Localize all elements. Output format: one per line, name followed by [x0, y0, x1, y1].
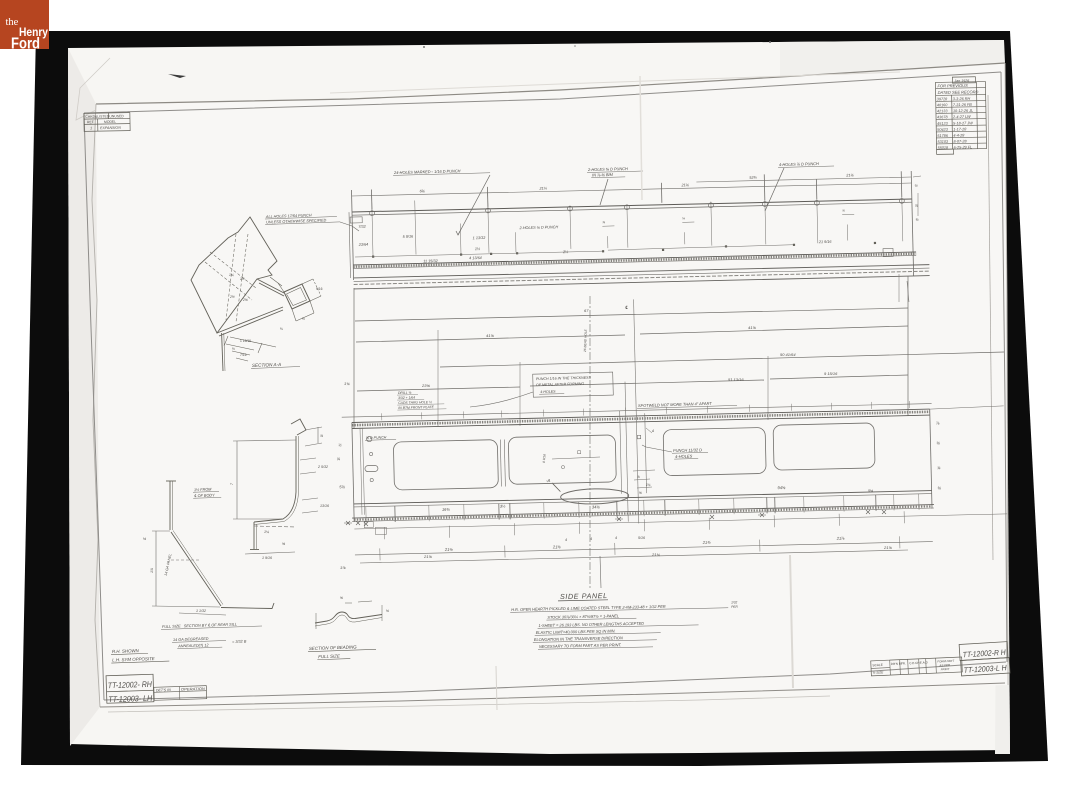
svg-text:5 9/16: 5 9/16 [403, 235, 415, 239]
svg-text:9 15/16: 9 15/16 [824, 371, 838, 376]
svg-text:⅛: ⅛ [386, 609, 389, 613]
svg-text:⅞: ⅞ [637, 475, 640, 479]
svg-text:½: ½ [302, 317, 305, 321]
svg-text:51786: 51786 [937, 134, 949, 138]
svg-text:13/16: 13/16 [320, 504, 329, 508]
svg-text:1/32: 1/32 [731, 600, 738, 604]
svg-text:34⅜: 34⅜ [592, 504, 601, 509]
svg-text:21⅞: 21⅞ [836, 536, 846, 541]
svg-text:21⅜: 21⅜ [552, 544, 562, 549]
svg-text:IN ⅞-⅝ B/M: IN ⅞-⅝ B/M [592, 172, 614, 178]
svg-text:50423: 50423 [937, 128, 949, 132]
svg-text:4-HOLES ⅞ D PUNCH: 4-HOLES ⅞ D PUNCH [779, 161, 819, 167]
svg-text:1⅞: 1⅞ [340, 565, 346, 570]
svg-text:5⅛: 5⅛ [868, 489, 873, 493]
svg-text:4: 4 [590, 537, 592, 541]
svg-text:1 9/16: 1 9/16 [262, 556, 272, 560]
svg-text:1 15/16: 1 15/16 [240, 339, 251, 343]
svg-text:℄ OF BODY: ℄ OF BODY [194, 493, 215, 498]
svg-text:½ SIZE: ½ SIZE [873, 670, 885, 674]
svg-text:⅝: ⅝ [282, 542, 285, 546]
svg-text:Ford: Ford [11, 36, 40, 53]
svg-text:4: 4 [565, 538, 567, 542]
svg-text:-A: -A [546, 478, 551, 483]
svg-text:4-HOLES: 4-HOLES [675, 453, 693, 458]
svg-text:41⅞: 41⅞ [486, 333, 494, 338]
svg-text:OPERATION: OPERATION [181, 687, 206, 692]
svg-text:10-12-26 JL: 10-12-26 JL [953, 109, 973, 113]
svg-text:45123: 45123 [937, 122, 949, 126]
svg-text:SIDE PANEL: SIDE PANEL [560, 591, 608, 601]
svg-text:8-07-28: 8-07-28 [953, 139, 967, 143]
svg-text:3/32 + 1/64: 3/32 + 1/64 [398, 396, 415, 400]
svg-text:16¾: 16¾ [442, 507, 451, 512]
svg-text:TR.: TR. [901, 661, 906, 665]
svg-text:FULL SIZE: FULL SIZE [318, 653, 340, 659]
svg-text:21⅞: 21⅞ [423, 554, 432, 559]
svg-text:26 BEAD HOLE: 26 BEAD HOLE [583, 328, 588, 353]
svg-text:53103: 53103 [937, 140, 949, 144]
svg-text:C.E.CH: C.E.CH [909, 661, 919, 665]
svg-text:SECTION A-A: SECTION A-A [252, 362, 281, 368]
svg-text:43678: 43678 [937, 115, 949, 119]
svg-text:3½: 3½ [500, 503, 506, 508]
svg-text:23⅛: 23⅛ [421, 383, 430, 388]
svg-text:¾: ¾ [842, 209, 845, 213]
svg-text:1⅞: 1⅞ [150, 568, 154, 573]
svg-text:⅝: ⅝ [340, 596, 343, 600]
svg-text:PRINT: PRINT [941, 667, 950, 671]
svg-text:67: 67 [584, 308, 589, 313]
svg-text:1½: 1½ [240, 277, 245, 281]
svg-text:21¼: 21¼ [538, 186, 547, 190]
svg-text:4: 4 [615, 536, 617, 540]
svg-text:1½ FROM: 1½ FROM [194, 487, 212, 492]
svg-text:⅜: ⅜ [280, 327, 283, 331]
svg-text:41⅞: 41⅞ [748, 325, 756, 330]
svg-text:½: ½ [232, 347, 235, 351]
svg-text:39728: 39728 [937, 97, 949, 101]
svg-text:21⅞: 21⅞ [883, 545, 892, 550]
svg-text:TT-12002- RH: TT-12002- RH [108, 680, 152, 690]
svg-text:21¾: 21¾ [651, 552, 660, 557]
svg-text:7-31-26 FB: 7-31-26 FB [953, 103, 973, 107]
svg-text:21⅛: 21⅛ [680, 183, 689, 187]
svg-text:SCALE: SCALE [872, 663, 883, 667]
svg-text:1-17-28: 1-17-28 [953, 127, 967, 131]
svg-text:4-HOLES: 4-HOLES [540, 390, 556, 394]
svg-text:52¾: 52¾ [749, 176, 757, 180]
svg-text:5/16: 5/16 [638, 536, 645, 540]
svg-text:1: 1 [90, 126, 92, 130]
svg-text:1¾: 1¾ [344, 381, 350, 386]
svg-text:1½: 1½ [475, 247, 481, 251]
svg-text:CHKD&LISTED: CHKD&LISTED [85, 114, 109, 118]
svg-text:UNUSED: UNUSED [109, 114, 124, 118]
svg-text:2½: 2½ [229, 295, 235, 299]
svg-text:2⅛: 2⅛ [242, 298, 248, 302]
svg-text:1¼: 1¼ [264, 530, 269, 534]
svg-text:21 9/16: 21 9/16 [818, 240, 833, 244]
svg-text:8 9/16: 8 9/16 [542, 454, 547, 463]
svg-text:= 3/32 B: = 3/32 B [232, 639, 247, 644]
svg-text:9/16: 9/16 [316, 287, 323, 291]
svg-text:1¼: 1¼ [646, 483, 651, 487]
svg-text:⅝ D PUNCH: ⅝ D PUNCH [366, 435, 387, 440]
svg-text:5⅞: 5⅞ [339, 484, 345, 489]
svg-text:FOR PREVIOUS: FOR PREVIOUS [937, 83, 968, 89]
svg-text:4-4-28: 4-4-28 [953, 134, 965, 138]
svg-text:42133: 42133 [937, 109, 949, 113]
svg-text:4 13/64: 4 13/64 [469, 256, 482, 260]
svg-text:40160: 40160 [937, 103, 949, 107]
svg-text:⅜: ⅜ [602, 220, 605, 224]
svg-text:1¼: 1¼ [229, 273, 234, 277]
svg-text:51 13/16: 51 13/16 [728, 377, 744, 382]
svg-text:MODEL: MODEL [104, 120, 116, 124]
svg-text:21¾: 21¾ [702, 540, 712, 545]
svg-text:1 1/32: 1 1/32 [196, 609, 206, 613]
svg-text:TT-12003- LH: TT-12003- LH [108, 694, 152, 704]
svg-text:DET'S IN: DET'S IN [156, 688, 171, 692]
svg-text:6⅝: 6⅝ [419, 189, 425, 193]
svg-text:⅛: ⅛ [143, 537, 146, 541]
svg-text:REF: REF [87, 120, 94, 124]
svg-text:21⅛: 21⅛ [444, 547, 454, 552]
svg-text:23/64: 23/64 [358, 243, 369, 247]
svg-text:5-18-27 JW: 5-18-27 JW [953, 121, 973, 125]
svg-text:A: A [651, 429, 654, 433]
svg-text:7/32: 7/32 [358, 225, 366, 229]
svg-text:PER: PER [731, 605, 738, 609]
svg-text:6-25-29 FL: 6-25-29 FL [954, 145, 973, 149]
svg-text:⅞: ⅞ [320, 434, 323, 438]
svg-text:2 5/32: 2 5/32 [317, 465, 328, 469]
svg-text:DRILL ⅛: DRILL ⅛ [398, 391, 412, 395]
svg-text:1 13/32: 1 13/32 [473, 236, 487, 240]
svg-text:⅝: ⅝ [639, 491, 642, 495]
svg-text:the: the [6, 17, 19, 28]
svg-text:7/16: 7/16 [240, 353, 247, 357]
svg-text:⅛: ⅛ [682, 216, 685, 220]
svg-text:94⅝: 94⅝ [777, 485, 786, 490]
svg-text:E.A.D: E.A.D [920, 660, 929, 664]
svg-text:50 41/64: 50 41/64 [780, 352, 796, 357]
svg-text:R.H. SHOWN: R.H. SHOWN [112, 648, 140, 654]
svg-text:PUNCH 11/32 D: PUNCH 11/32 D [673, 447, 702, 453]
svg-text:DATED SEE RECORD: DATED SEE RECORD [938, 89, 979, 95]
svg-text:EXPANSION: EXPANSION [100, 126, 121, 130]
svg-text:55018: 55018 [938, 146, 950, 150]
svg-text:21⅛: 21⅛ [845, 173, 854, 177]
svg-text:3-3-26 RH: 3-3-26 RH [953, 97, 971, 101]
svg-text:2-4-27 LW: 2-4-27 LW [952, 115, 971, 119]
